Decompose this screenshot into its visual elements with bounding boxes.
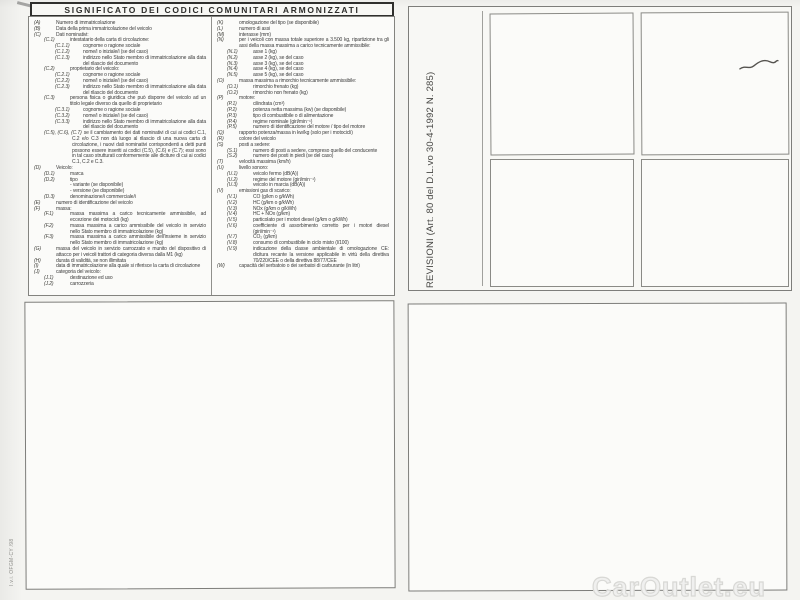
legend-entry-code: (V.9) bbox=[227, 247, 253, 253]
legend-entry-text: capacità del serbatoio o dei serbatoi di… bbox=[239, 264, 389, 270]
blank-box-bottom-left bbox=[24, 300, 395, 590]
legend-entry-code: (F.3) bbox=[44, 235, 70, 241]
blank-box-bottom-right bbox=[408, 303, 788, 592]
revisioni-cell-2 bbox=[641, 12, 790, 156]
legend-entry: (V.9)indicazione della classe ambientale… bbox=[217, 247, 389, 264]
scanned-document-sheet: SIGNIFICATO DEI CODICI COMUNITARI ARMONI… bbox=[0, 0, 800, 600]
legend-entry-text: se il cambiamento dei dati nominativi di… bbox=[72, 130, 206, 165]
legend-entry-code: (F.1) bbox=[44, 212, 70, 218]
legend-entry: (J.2)carrozzeria bbox=[34, 282, 206, 288]
page-title: SIGNIFICATO DEI CODICI COMUNITARI ARMONI… bbox=[64, 5, 359, 15]
legend-entry-code: (C.3) bbox=[44, 96, 70, 102]
pen-mark bbox=[738, 55, 780, 73]
legend-entry-text: massa del veicolo in servizio carrozzato… bbox=[56, 247, 206, 259]
legend-left-column: (A)Numero di immatricolazione(B)Data del… bbox=[29, 17, 212, 295]
document-title-box: SIGNIFICATO DEI CODICI COMUNITARI ARMONI… bbox=[30, 2, 394, 17]
legend-entry-code: (G) bbox=[34, 247, 56, 253]
legend-entry-code: (F.2) bbox=[44, 224, 70, 230]
revisioni-cell-3 bbox=[490, 159, 634, 287]
legend-right-column: (K)omologazione del tipo (se disponibile… bbox=[212, 17, 394, 295]
codes-legend-panel: (A)Numero di immatricolazione(B)Data del… bbox=[28, 16, 395, 296]
legend-entry-code: (V.6) bbox=[227, 224, 253, 230]
legend-entry-code: (D.2) bbox=[44, 178, 70, 184]
legend-entry: (W)capacità del serbatoio o dei serbatoi… bbox=[217, 264, 389, 270]
revisioni-strip-divider bbox=[482, 11, 483, 286]
print-code: I.v.i. OFGM-CY /98 bbox=[9, 539, 15, 586]
legend-entry-code: (J.2) bbox=[44, 282, 70, 288]
legend-entry: (G)massa del veicolo in servizio carrozz… bbox=[34, 247, 206, 259]
revisioni-label: REVISIONI (Art. 80 del D.L.vo 30-4-1992 … bbox=[425, 72, 436, 288]
revisioni-cell-1 bbox=[490, 12, 635, 155]
legend-entry-code: (W) bbox=[217, 264, 239, 270]
legend-entry: (V.6)coefficiente di assorbimento corret… bbox=[217, 224, 389, 236]
legend-entry-text: carrozzeria bbox=[70, 282, 206, 288]
legend-entry-text: indicazione della classe ambientale di o… bbox=[253, 247, 389, 264]
legend-entry-code: (C.1.3) bbox=[55, 56, 83, 62]
legend-entry-code: (C.2.3) bbox=[55, 85, 83, 91]
legend-entry: (C.5), (C.6), (C.7)se il cambiamento dei… bbox=[34, 131, 206, 166]
revisioni-cell-4 bbox=[641, 159, 789, 287]
watermark: CarOutlet.eu bbox=[592, 572, 766, 600]
legend-entry: (N)per i veicoli con massa totale superi… bbox=[217, 38, 389, 50]
revisioni-section: REVISIONI (Art. 80 del D.L.vo 30-4-1992 … bbox=[408, 6, 792, 291]
legend-entry-code: (C.3.3) bbox=[55, 120, 83, 126]
legend-entry: (C.1.3)indirizzo nello Stato membro di i… bbox=[34, 56, 206, 68]
legend-entry-code: (N) bbox=[217, 38, 239, 44]
